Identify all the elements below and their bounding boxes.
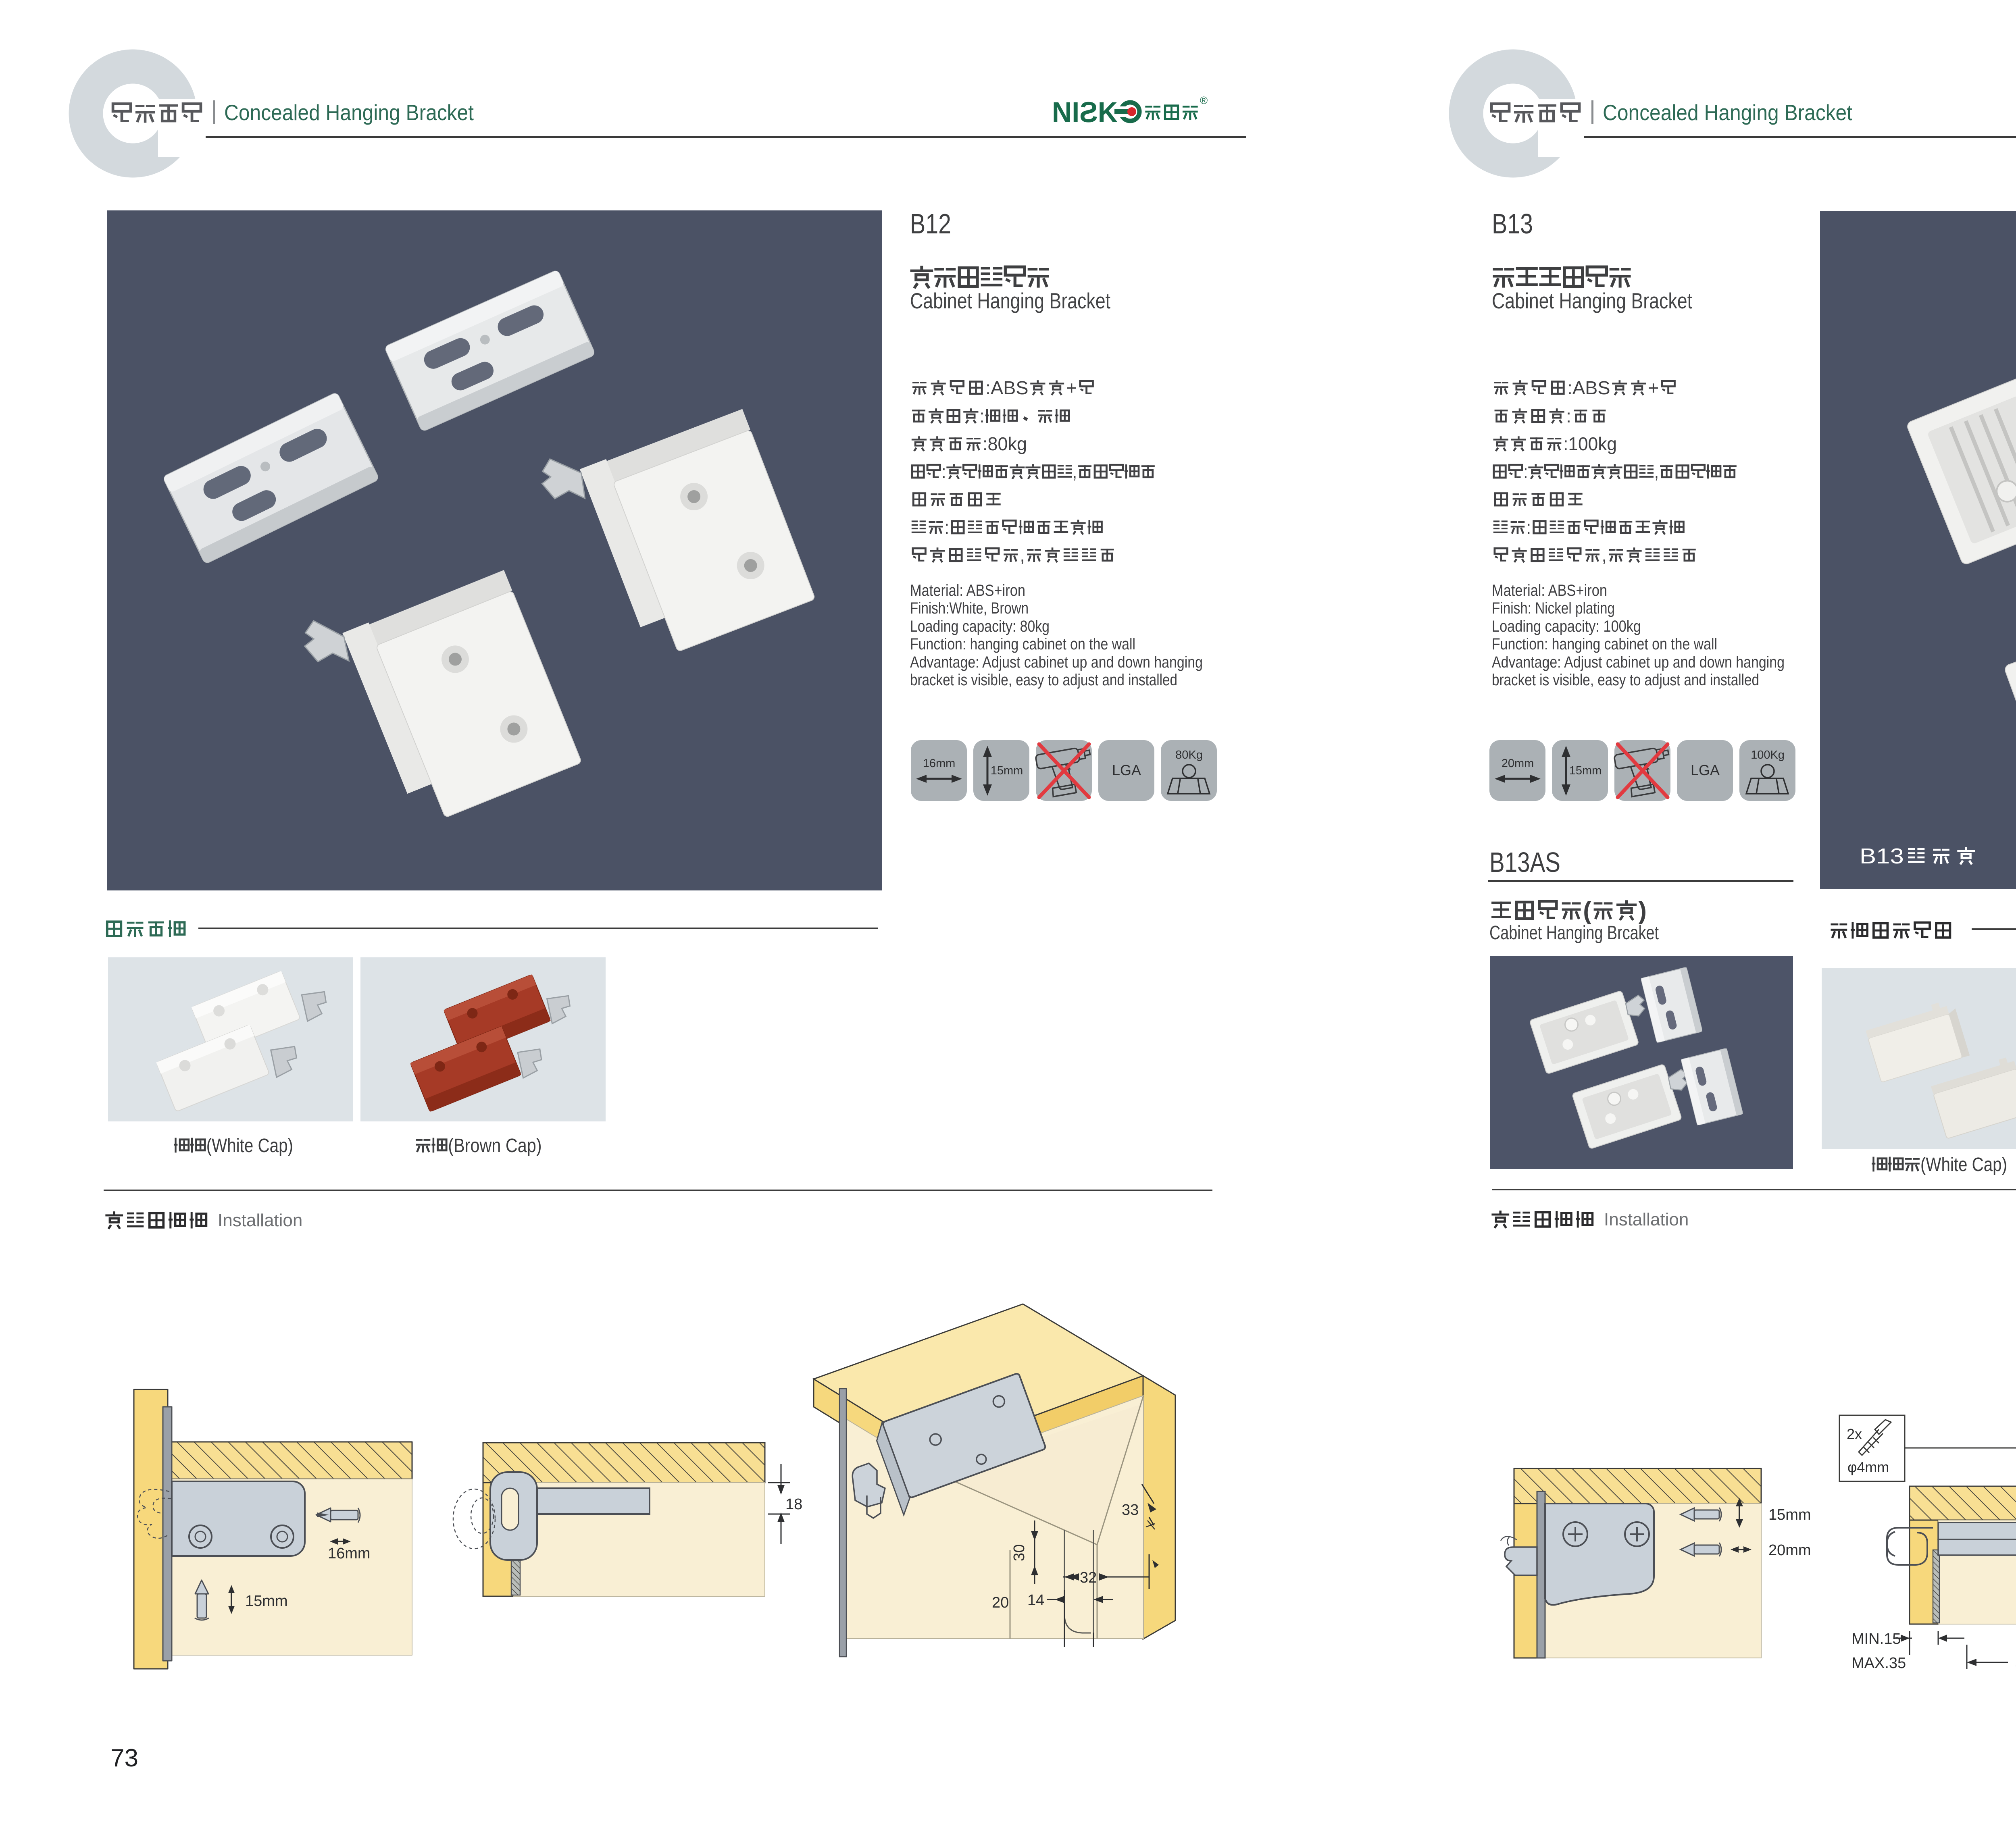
svg-text:20mm: 20mm <box>1768 1542 1811 1559</box>
svg-text:Loading capacity: 100kg: Loading capacity: 100kg <box>1492 618 1641 635</box>
svg-text:80Kg: 80Kg <box>1175 749 1203 761</box>
svg-text::: : <box>1566 406 1571 426</box>
svg-text:Installation: Installation <box>1604 1210 1689 1229</box>
svg-text:Finish: Nickel plating: Finish: Nickel plating <box>1492 599 1615 617</box>
svg-text:15mm: 15mm <box>1569 764 1602 777</box>
svg-text:bracket is visible, easy to ad: bracket is visible, easy to adjust and i… <box>1492 671 1759 689</box>
svg-text:NIƧK: NIƧK <box>1052 97 1118 129</box>
svg-text::: : <box>1523 461 1528 482</box>
svg-text:,: , <box>1073 461 1077 482</box>
svg-text:20: 20 <box>992 1594 1009 1611</box>
svg-text:+: + <box>1066 377 1077 398</box>
svg-text:LGA: LGA <box>1691 762 1720 778</box>
svg-text::: : <box>1526 517 1531 538</box>
svg-text:B13: B13 <box>1860 844 1904 868</box>
svg-text:Concealed Hanging Bracket: Concealed Hanging Bracket <box>224 100 474 125</box>
svg-text:LGA: LGA <box>1112 762 1141 778</box>
svg-text:(White Cap): (White Cap) <box>1920 1154 2007 1175</box>
svg-text:73: 73 <box>110 1744 138 1772</box>
svg-text:Finish:White, Brown: Finish:White, Brown <box>910 599 1029 617</box>
svg-text:Advantage: Adjust cabinet up a: Advantage: Adjust cabinet up and down ha… <box>910 653 1203 671</box>
svg-text:33: 33 <box>1122 1502 1139 1518</box>
svg-text:15mm: 15mm <box>991 764 1023 777</box>
svg-text:,: , <box>1654 461 1659 482</box>
svg-text:32: 32 <box>1080 1569 1097 1586</box>
svg-text:30: 30 <box>1011 1544 1028 1561</box>
svg-text::: : <box>941 461 946 482</box>
svg-text:(: ( <box>1583 897 1591 925</box>
svg-text::100kg: :100kg <box>1563 433 1617 454</box>
svg-text:bracket is visible, easy to ad: bracket is visible, easy to adjust and i… <box>910 671 1177 689</box>
svg-text:Cabinet Hanging Bracket: Cabinet Hanging Bracket <box>1492 288 1692 313</box>
svg-text:Material: ABS+iron: Material: ABS+iron <box>910 582 1025 599</box>
svg-text:): ) <box>1638 897 1647 925</box>
svg-text:MAX.35: MAX.35 <box>1851 1655 1906 1672</box>
svg-text:Cabinet Hanging Bracket: Cabinet Hanging Bracket <box>910 288 1110 313</box>
svg-text::ABS: :ABS <box>1567 377 1610 398</box>
svg-text:,: , <box>1602 545 1607 566</box>
svg-text:100Kg: 100Kg <box>1751 749 1785 761</box>
svg-text:B13: B13 <box>1492 208 1533 239</box>
svg-text:φ4mm: φ4mm <box>1847 1459 1889 1475</box>
svg-text:20mm: 20mm <box>1502 757 1534 770</box>
svg-text:15mm: 15mm <box>245 1593 288 1610</box>
svg-text:(White Cap): (White Cap) <box>206 1135 293 1156</box>
svg-text::: : <box>980 406 985 426</box>
svg-text:Loading capacity: 80kg: Loading capacity: 80kg <box>910 618 1050 635</box>
svg-text:Material: ABS+iron: Material: ABS+iron <box>1492 582 1607 599</box>
svg-text:Advantage: Adjust cabinet up a: Advantage: Adjust cabinet up and down ha… <box>1492 653 1785 671</box>
svg-text:16mm: 16mm <box>328 1545 371 1562</box>
svg-text:Cabinet Hanging Brcaket: Cabinet Hanging Brcaket <box>1489 922 1659 944</box>
svg-text:B13AS: B13AS <box>1489 847 1560 878</box>
svg-text:Function: hanging cabinet on t: Function: hanging cabinet on the wall <box>1492 635 1717 653</box>
svg-text:16mm: 16mm <box>923 757 956 770</box>
svg-text::80kg: :80kg <box>983 433 1027 454</box>
svg-text:15mm: 15mm <box>1768 1506 1811 1523</box>
svg-text:MIN.15: MIN.15 <box>1851 1631 1901 1647</box>
svg-text:Installation: Installation <box>218 1211 302 1230</box>
svg-text:Concealed Hanging Bracket: Concealed Hanging Bracket <box>1603 100 1852 125</box>
svg-text:®: ® <box>1200 94 1208 106</box>
svg-text::ABS: :ABS <box>985 377 1029 398</box>
svg-text:Function: hanging cabinet on t: Function: hanging cabinet on the wall <box>910 635 1135 653</box>
svg-text:,: , <box>1020 545 1025 566</box>
svg-text:B12: B12 <box>910 208 951 239</box>
svg-text:(Brown Cap): (Brown Cap) <box>448 1135 541 1156</box>
svg-text:18: 18 <box>785 1496 802 1513</box>
svg-text:2x: 2x <box>1847 1426 1862 1442</box>
svg-text:14: 14 <box>1027 1592 1044 1609</box>
svg-text::: : <box>944 517 949 538</box>
svg-text:+: + <box>1648 377 1659 398</box>
